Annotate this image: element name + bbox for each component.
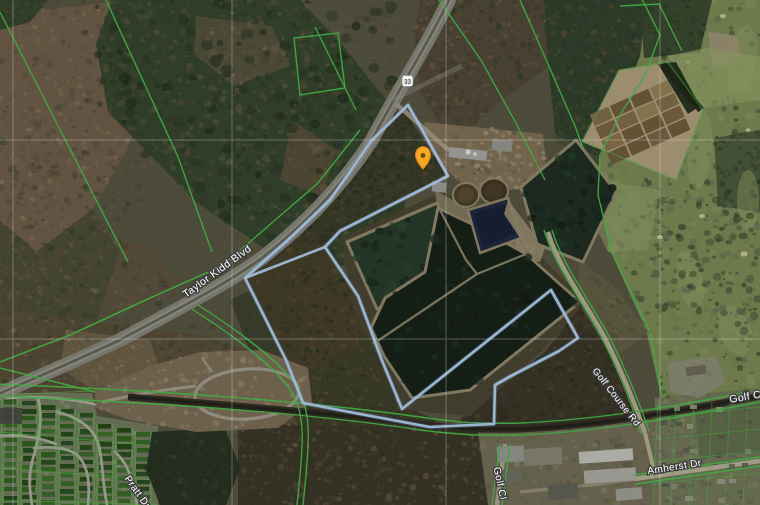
svg-text:33: 33 [404,78,412,85]
